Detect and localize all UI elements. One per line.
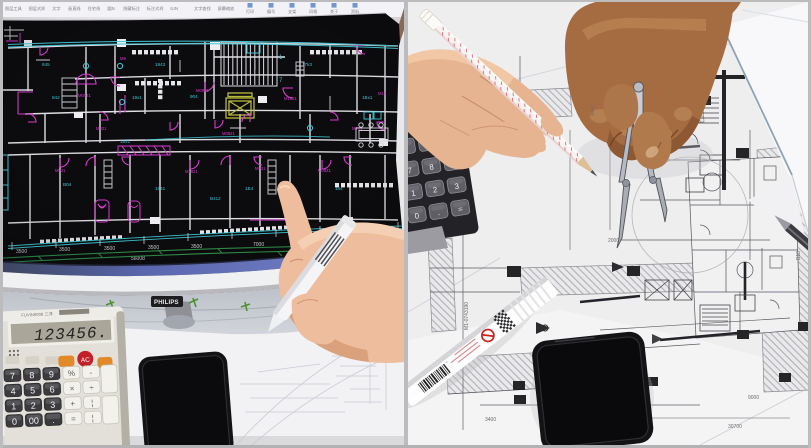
svg-text:风格: 风格 bbox=[309, 8, 317, 14]
svg-text:+: + bbox=[70, 399, 75, 408]
svg-text:3550: 3550 bbox=[590, 105, 595, 116]
svg-text:打印: 打印 bbox=[246, 8, 254, 14]
svg-text:9: 9 bbox=[49, 369, 54, 379]
svg-text:4: 4 bbox=[10, 386, 15, 396]
svg-text:编号: 编号 bbox=[267, 8, 275, 14]
svg-text:隐藏标注: 隐藏标注 bbox=[123, 5, 141, 12]
svg-text:6: 6 bbox=[49, 384, 54, 394]
svg-text:图层式样: 图层式样 bbox=[29, 5, 46, 12]
svg-text:=: = bbox=[71, 414, 76, 423]
svg-text:00: 00 bbox=[29, 416, 39, 426]
svg-text:ILIN: ILIN bbox=[170, 6, 178, 11]
svg-text:30700: 30700 bbox=[728, 424, 742, 430]
svg-text:住宅线: 住宅线 bbox=[88, 5, 101, 11]
svg-text:屏幕缩放: 屏幕缩放 bbox=[218, 5, 236, 12]
svg-text:文字查找: 文字查找 bbox=[194, 5, 212, 12]
svg-text:¦: ¦ bbox=[91, 398, 93, 407]
svg-text:2: 2 bbox=[31, 400, 36, 410]
svg-text:.: . bbox=[52, 415, 55, 425]
svg-text:3400: 3400 bbox=[485, 417, 496, 423]
svg-text:标注式样: 标注式样 bbox=[147, 5, 164, 12]
svg-text:%: % bbox=[68, 369, 76, 378]
svg-text:3: 3 bbox=[50, 400, 55, 410]
svg-text:AC: AC bbox=[81, 357, 91, 364]
svg-text:B18: B18 bbox=[796, 251, 802, 260]
svg-text:PHILIPS: PHILIPS bbox=[154, 300, 179, 306]
svg-text:M1-0743190: M1-0743190 bbox=[464, 302, 470, 330]
svg-text:5: 5 bbox=[30, 385, 35, 395]
svg-text:文字: 文字 bbox=[52, 5, 60, 12]
svg-text:资料: 资料 bbox=[351, 8, 359, 14]
svg-text:关于: 关于 bbox=[330, 8, 338, 14]
svg-text:123456.: 123456. bbox=[34, 324, 109, 345]
svg-text:¦: ¦ bbox=[92, 414, 94, 423]
svg-text:画直线: 画直线 bbox=[68, 5, 81, 12]
svg-text:×: × bbox=[70, 384, 75, 393]
svg-text:支架: 支架 bbox=[288, 8, 296, 14]
svg-text:9000: 9000 bbox=[748, 395, 759, 401]
svg-text:0: 0 bbox=[12, 417, 17, 427]
svg-text:8: 8 bbox=[29, 370, 34, 380]
svg-text:7: 7 bbox=[10, 371, 15, 381]
svg-text:1: 1 bbox=[11, 401, 16, 411]
